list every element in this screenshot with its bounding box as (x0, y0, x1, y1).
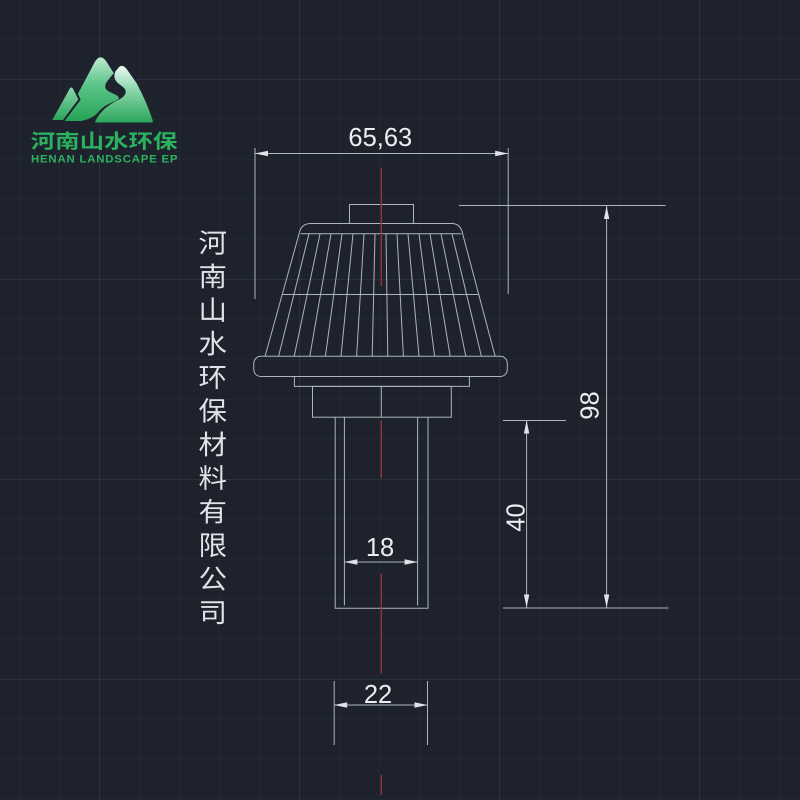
svg-text:22: 22 (364, 681, 392, 709)
svg-text:40: 40 (503, 503, 531, 531)
svg-text:18: 18 (366, 534, 394, 562)
svg-text:HENAN LANDSCAPE EP: HENAN LANDSCAPE EP (31, 153, 178, 165)
svg-text:65,63: 65,63 (348, 124, 412, 152)
svg-text:98: 98 (577, 391, 605, 419)
